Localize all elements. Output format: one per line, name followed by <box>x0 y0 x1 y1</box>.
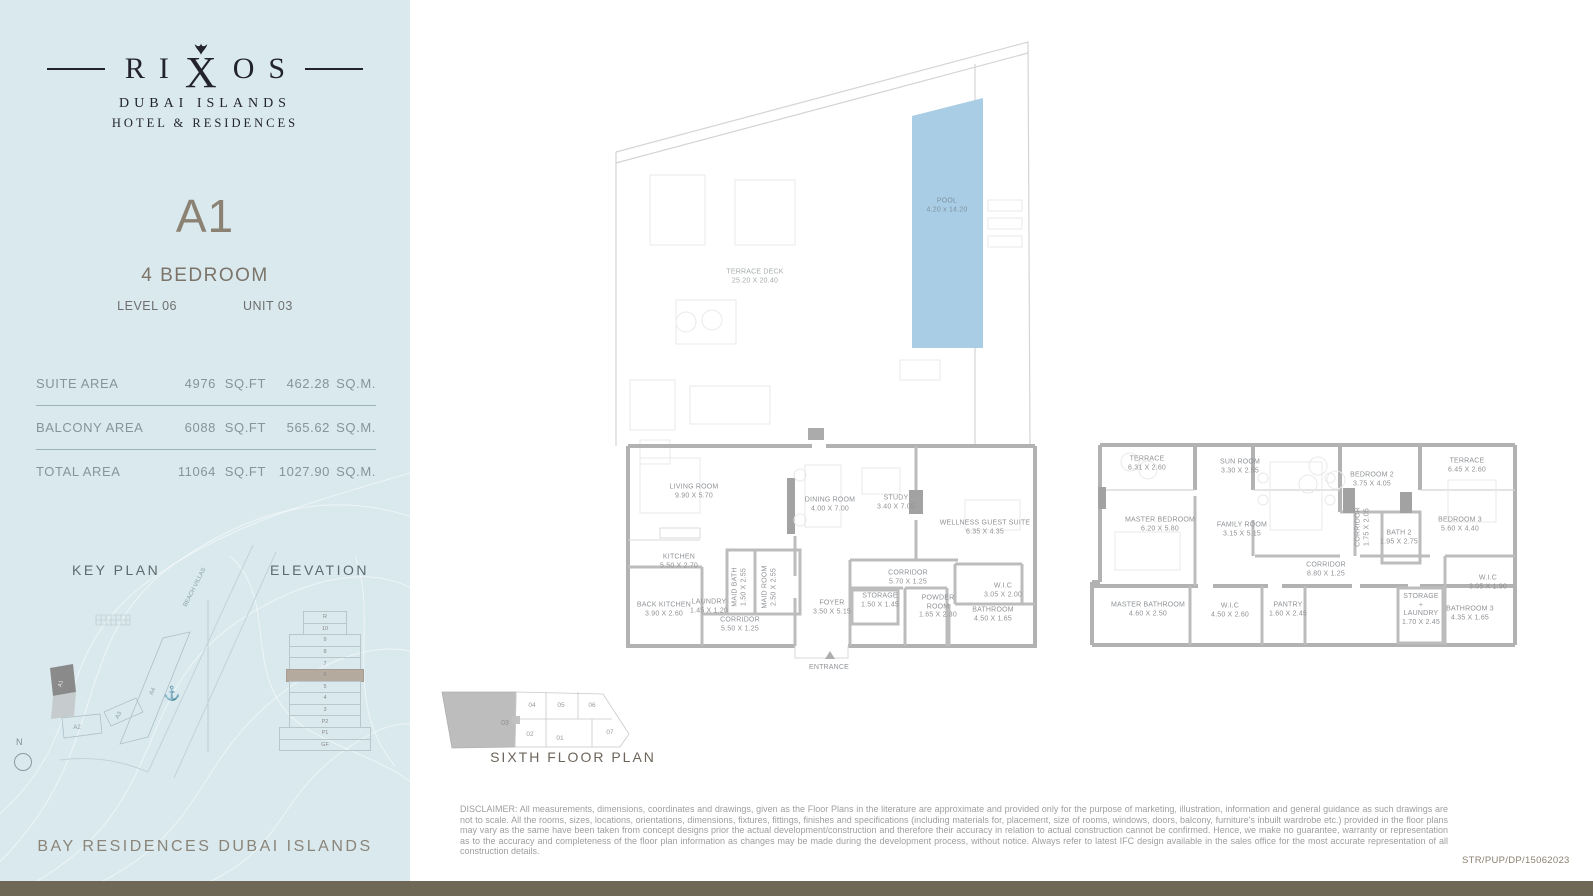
brand-line2: HOTEL & RESIDENCES <box>0 116 410 131</box>
anchor-icon: ⚓ <box>163 685 180 702</box>
room-label: MAID ROOM2.50 X 2.55 <box>762 565 779 608</box>
room-label: DINING ROOM4.00 X 7.00 <box>805 497 855 514</box>
keyplan-building-a1-upper <box>50 664 76 696</box>
room-label: TERRACE6.45 X 2.60 <box>1448 458 1486 475</box>
floor-key-unit-label: 07 <box>606 729 614 736</box>
room-label: SUN ROOM3.30 X 2.55 <box>1220 459 1260 476</box>
room-label: TERRACE DECK25.20 X 20.40 <box>726 269 783 286</box>
room-label: W.I.C4.50 X 2.60 <box>1211 603 1249 620</box>
room-label: FAMILY ROOM3.15 X 5.15 <box>1217 522 1267 539</box>
floor-key-shape: 03 04 05 06 02 01 07 <box>442 692 629 748</box>
floor-key-unit-label: 06 <box>588 702 596 709</box>
logo-rule-left <box>47 68 105 70</box>
keyplan-title: KEY PLAN <box>72 562 160 578</box>
keyplan-label-a4: A4 <box>149 686 158 696</box>
compass-north-label: N <box>16 737 23 747</box>
room-label: W.I.C3.05 X 2.00 <box>984 583 1022 600</box>
room-label: MAID BATH1.50 X 2.55 <box>732 567 749 606</box>
room-label: TERRACE6.31 X 2.60 <box>1128 456 1166 473</box>
room-label-pool: POOL4.20 x 14.20 <box>927 198 968 215</box>
plan-area: 03 04 05 06 02 01 07 TERRACE DECK25.20 X… <box>410 0 1593 881</box>
table-row-total-area: TOTAL AREA 11064 SQ.FT 1027.90 SQ.M. <box>36 449 376 493</box>
room-label: POWDER ROOM1.65 X 2.30 <box>918 594 958 620</box>
compass-icon <box>14 753 32 771</box>
room-label: LIVING ROOM9.90 X 5.70 <box>670 484 719 501</box>
footer-bar <box>0 881 1593 896</box>
room-label: STORAGE + LAUNDRY1.70 X 2.45 <box>1401 593 1441 627</box>
floor-key-unit-label: 01 <box>556 735 564 742</box>
room-label: BATHROOM 34.35 X 1.65 <box>1446 606 1494 623</box>
room-label: CORRIDOR8.80 X 1.25 <box>1306 562 1346 579</box>
elevation-diagram: R 10 9 8 7 6 5 4 3 P2 P1 GF <box>280 612 372 751</box>
entrance-label: ENTRANCE <box>809 664 849 673</box>
logo-text: RI <box>111 52 183 86</box>
room-label: KITCHEN5.50 X 2.70 <box>660 554 698 571</box>
table-row-balcony-area: BALCONY AREA 6088 SQ.FT 565.62 SQ.M. <box>36 405 376 449</box>
keyplan-building-a2 <box>62 714 102 738</box>
brand-logo: RI X OS DUBAI ISLANDS HOTEL & RESIDENCES <box>0 52 410 131</box>
entrance-arrow-icon <box>825 651 835 659</box>
room-label: CORRIDOR5.50 X 1.25 <box>720 617 760 634</box>
logo-rule-right <box>305 68 363 70</box>
brand-line1: DUBAI ISLANDS <box>0 96 410 112</box>
room-label: W.I.C3.05 X 1.90 <box>1469 575 1507 592</box>
room-label: BACK KITCHEN3.90 X 2.60 <box>637 602 691 619</box>
keyplan-road-label: BEACH VILLAS <box>183 567 208 608</box>
room-label: BATHROOM4.50 X 1.65 <box>972 607 1014 624</box>
keyplan-hatch <box>96 615 130 625</box>
room-label: BEDROOM 23.75 X 4.05 <box>1350 472 1394 489</box>
floor-key-unit-label: 02 <box>526 731 534 738</box>
table-row-suite-area: SUITE AREA 4976 SQ.FT 462.28 SQ.M. <box>36 362 376 405</box>
room-label: BATH 21.95 X 2.75 <box>1380 530 1418 547</box>
floorplan-brochure-page: { "sidebar": { "brand": {"pre": "RI", "x… <box>0 0 1593 896</box>
disclaimer-text: DISCLAIMER: All measurements, dimensions… <box>460 804 1448 857</box>
keyplan-building-a1-lower <box>51 692 76 719</box>
room-label: CORRIDOR1.75 X 2.05 <box>1355 507 1372 547</box>
room-label: MASTER BATHROOM4.60 X 2.50 <box>1111 602 1185 619</box>
room-label: STUDY3.40 X 7.05 <box>877 495 915 512</box>
room-label: FOYER3.50 X 5.15 <box>813 600 851 617</box>
room-label: LAUNDRY1.45 X 1.20 <box>690 599 728 616</box>
room-label: STORAGE1.50 X 1.45 <box>861 593 899 610</box>
elevation-floor: GF <box>279 739 371 752</box>
room-label: WELLNESS GUEST SUITE6.35 X 4.35 <box>940 520 1031 537</box>
pool-shape <box>912 98 983 348</box>
floor-key-title: SIXTH FLOOR PLAN <box>473 749 673 765</box>
sidebar: A1 A2 A3 A4 BEACH VILLAS ⚓ RI X OS DUBAI… <box>0 0 410 881</box>
document-code: STR/PUP/DP/15062023 <box>1462 855 1582 866</box>
floor-key-unit-label: 04 <box>528 702 536 709</box>
room-label: BEDROOM 35.60 X 4.40 <box>1438 517 1482 534</box>
keyplan-label-a2: A2 <box>73 725 81 731</box>
floor-key-unit-label: 03 <box>501 720 509 727</box>
room-label: CORRIDOR5.70 X 1.25 <box>888 570 928 587</box>
keyplan-label-a3: A3 <box>115 710 124 720</box>
project-name: BAY RESIDENCES DUBAI ISLANDS <box>0 838 410 856</box>
room-label: MASTER BEDROOM6.20 X 5.80 <box>1125 517 1195 534</box>
floor-key-unit-label: 05 <box>557 702 565 709</box>
room-label: PANTRY1.60 X 2.45 <box>1269 602 1307 619</box>
crown-icon <box>193 42 209 56</box>
area-table: SUITE AREA 4976 SQ.FT 462.28 SQ.M. BALCO… <box>36 362 376 493</box>
logo-x: X <box>185 58 217 88</box>
elevation-title: ELEVATION <box>270 562 369 578</box>
